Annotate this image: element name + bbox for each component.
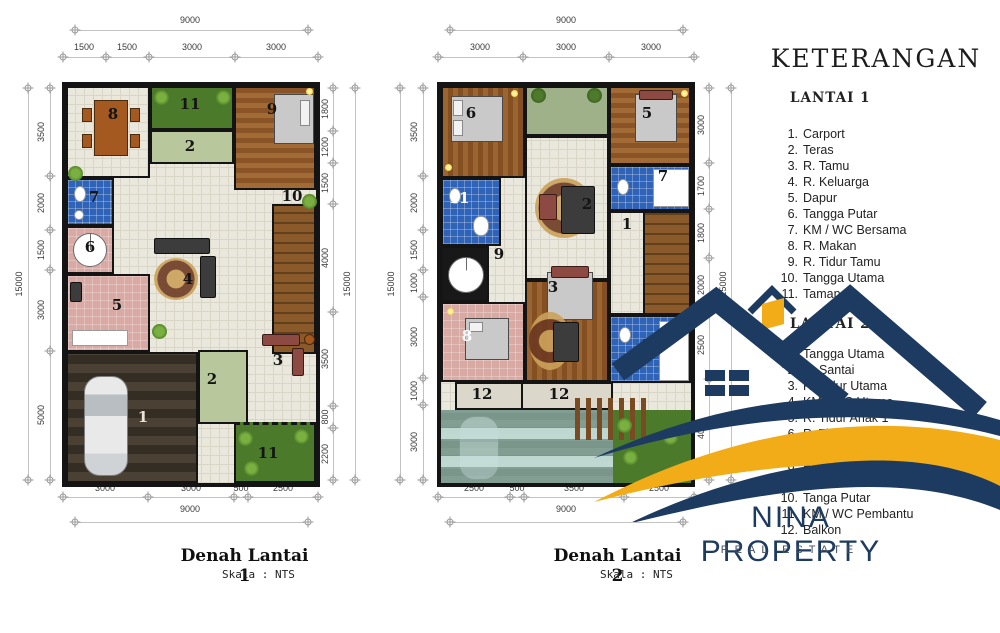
room-number: 3 [548, 278, 558, 296]
legend-lantai1-heading: LANTAI 1 [790, 90, 871, 106]
dim-label: 3000 [409, 432, 419, 452]
dim-label: 3500 [409, 122, 419, 142]
room-number: 12 [472, 385, 493, 403]
dim-marker [330, 85, 337, 92]
sofa-keluarga [200, 256, 216, 298]
dim-marker [435, 494, 442, 501]
dim-marker [60, 494, 67, 501]
legend-item: 7.KM / WC Bersama [772, 222, 987, 238]
logo-brand-name: NINA PROPERTY [660, 501, 922, 569]
room-teras-bawah [198, 350, 248, 424]
dim-label: 1000 [409, 273, 419, 293]
dim-label: 1800 [320, 99, 330, 119]
room-number: 2 [207, 370, 217, 388]
room-number: 2 [185, 137, 195, 155]
dim-label: 3000 [266, 42, 286, 52]
dim-marker [47, 477, 54, 484]
dim-marker [25, 477, 32, 484]
nina-property-logo [588, 272, 1000, 522]
dim-marker [420, 267, 427, 274]
room-number: 9 [494, 245, 504, 263]
dim-marker [315, 494, 322, 501]
dim-marker [352, 85, 359, 92]
room-number: 3 [273, 351, 283, 369]
legend-item: 6.Tangga Putar [772, 206, 987, 222]
logo-window-icon [705, 370, 749, 396]
dim-marker [47, 267, 54, 274]
dim-marker [330, 309, 337, 316]
dim-label: 3000 [36, 300, 46, 320]
dim-label: 1200 [320, 137, 330, 157]
dim-marker [680, 27, 687, 34]
dim-marker [728, 85, 735, 92]
legend-item: 3.R. Tamu [772, 158, 987, 174]
dim-marker [706, 85, 713, 92]
floorplan-sheet: KETERANGAN LANTAI 1 1.Carport 2.Teras 3.… [0, 0, 1000, 633]
dim-marker [706, 255, 713, 262]
dim-marker [435, 54, 442, 61]
side-table [304, 334, 315, 345]
logo-tagline: REAL ESTATE [690, 544, 890, 556]
dim-label: 1500 [320, 173, 330, 193]
dim-label: 9000 [556, 15, 576, 25]
dim-marker [330, 128, 337, 135]
legend-item: 1.Carport [772, 126, 987, 142]
room-number: 1 [138, 408, 148, 426]
dim-marker [420, 402, 427, 409]
room-number: 7 [658, 167, 668, 185]
car [84, 376, 128, 476]
dim-label: 1700 [696, 176, 706, 196]
dim-label: 2000 [409, 193, 419, 213]
dim-marker [103, 54, 110, 61]
legend-item: 8.R. Makan [772, 238, 987, 254]
dim-label: 9000 [180, 15, 200, 25]
legend-item: 2.Teras [772, 142, 987, 158]
tangga-utama-steps [272, 204, 316, 354]
dim-marker [420, 294, 427, 301]
sofa-keluarga [154, 238, 210, 254]
dim-label: 3500 [36, 122, 46, 142]
dim-marker [706, 160, 713, 167]
dim-marker [47, 227, 54, 234]
dim-marker [47, 85, 54, 92]
room-number: 11 [449, 189, 470, 207]
plan1-scale: Skala : NTS [222, 568, 295, 581]
room-kmwc-anak [609, 165, 691, 211]
dim-label: 2000 [36, 193, 46, 213]
room-number: 11 [180, 95, 201, 113]
dim-label: 1500 [36, 240, 46, 260]
room-number: 8 [108, 105, 118, 123]
dim-label: 9000 [180, 504, 200, 514]
dim-label: 3000 [556, 42, 576, 52]
dim-marker [447, 519, 454, 526]
dim-marker [330, 403, 337, 410]
room-number: 6 [85, 238, 95, 256]
dim-marker [305, 519, 312, 526]
dim-label: 1500 [409, 240, 419, 260]
dim-marker [232, 54, 239, 61]
sofa-tamu [262, 334, 300, 346]
dim-label: 15000 [342, 271, 352, 296]
dim-marker [47, 173, 54, 180]
dim-marker [447, 27, 454, 34]
dim-marker [25, 85, 32, 92]
dim-label: 3000 [696, 115, 706, 135]
room-number: 8 [462, 327, 472, 345]
dim-label: 4000 [320, 248, 330, 268]
room-number: 2 [582, 195, 592, 213]
dim-label: 3000 [409, 327, 419, 347]
room-number: 5 [112, 296, 122, 314]
dim-marker [420, 375, 427, 382]
plan1-floorplan: 8 11 2 9 7 6 10 4 5 2 3 1 11 [62, 82, 320, 487]
room-number: 9 [267, 100, 277, 118]
dim-marker [60, 54, 67, 61]
logo-gold-accent-icon [762, 298, 784, 330]
dim-marker [521, 494, 528, 501]
dim-label: 1000 [409, 381, 419, 401]
dim-marker [315, 54, 322, 61]
room-number: 1 [622, 215, 632, 233]
dim-label: 2200 [320, 444, 330, 464]
dim-label: 3500 [320, 349, 330, 369]
dim-label: 1500 [117, 42, 137, 52]
room-number: 5 [642, 104, 652, 122]
room-number: 6 [466, 104, 476, 122]
legend-title: KETERANGAN [762, 44, 990, 73]
dim-marker [47, 348, 54, 355]
legend-item: 9.R. Tidur Tamu [772, 254, 987, 270]
dim-label: 3000 [470, 42, 490, 52]
dim-marker [330, 201, 337, 208]
room-tidur-pembantu [441, 302, 525, 382]
room-number: 10 [448, 266, 469, 284]
room-number: 11 [258, 444, 279, 462]
dim-label: 1500 [74, 42, 94, 52]
dim-label: 3000 [641, 42, 661, 52]
room-number: 10 [282, 187, 303, 205]
dim-marker [330, 160, 337, 167]
room-number: 4 [183, 270, 193, 288]
dim-marker [520, 54, 527, 61]
dim-marker [420, 85, 427, 92]
room-tidur-anak1 [609, 86, 691, 165]
dim-marker [691, 54, 698, 61]
dim-marker [305, 27, 312, 34]
room-tidur-anak2 [441, 86, 525, 178]
plan2-scale: Skala : NTS [600, 568, 673, 581]
dim-marker [606, 54, 613, 61]
room-carport [66, 352, 198, 483]
dim-marker [72, 519, 79, 526]
dim-marker [352, 477, 359, 484]
room-balkon-taman-atas [525, 86, 609, 136]
dim-marker [420, 173, 427, 180]
dim-label: 5000 [36, 405, 46, 425]
dim-marker [507, 494, 514, 501]
room-santai [525, 136, 609, 280]
legend-item: 5.Dapur [772, 190, 987, 206]
dim-label: 800 [320, 409, 330, 424]
legend-item: 4.R. Keluarga [772, 174, 987, 190]
sofa-tamu [292, 348, 304, 376]
room-number: 12 [549, 385, 570, 403]
dim-label: 3000 [182, 42, 202, 52]
dim-marker [420, 477, 427, 484]
dim-marker [397, 85, 404, 92]
dim-marker [420, 227, 427, 234]
dim-label: 15000 [14, 271, 24, 296]
dim-label: 15000 [386, 271, 396, 296]
dim-marker [706, 206, 713, 213]
room-dapur [66, 274, 150, 352]
dim-label: 9000 [556, 504, 576, 514]
dim-marker [245, 494, 252, 501]
room-number: 7 [89, 188, 99, 206]
dim-label: 1800 [696, 223, 706, 243]
dim-marker [145, 494, 152, 501]
dim-marker [397, 477, 404, 484]
dim-marker [330, 477, 337, 484]
dim-marker [330, 425, 337, 432]
dim-marker [72, 27, 79, 34]
room-makan [66, 86, 150, 178]
dim-marker [146, 54, 153, 61]
dim-marker [231, 494, 238, 501]
logo-roof-right-icon [776, 298, 980, 410]
